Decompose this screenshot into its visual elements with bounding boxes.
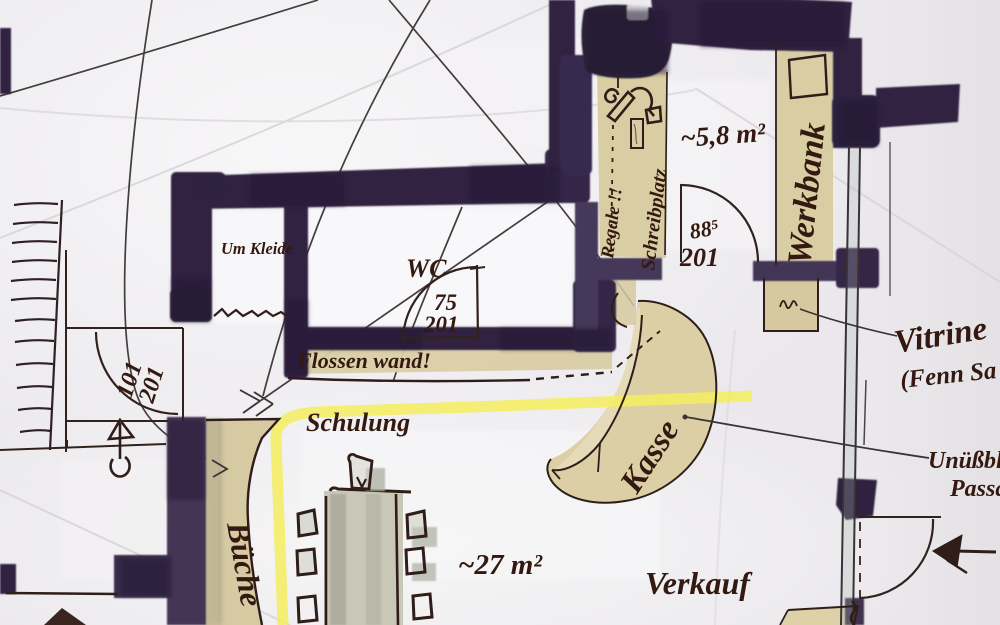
svg-text:Schulung: Schulung [306, 408, 410, 437]
svg-text:Passa: Passa [949, 476, 1000, 502]
svg-text:88⁵: 88⁵ [688, 214, 722, 244]
svg-text:Flossen wand!: Flossen wand! [296, 348, 431, 373]
svg-text:Um Kleide: Um Kleide [221, 239, 293, 258]
svg-text:~5,8 m²: ~5,8 m² [679, 117, 767, 153]
svg-text:WC: WC [406, 254, 447, 283]
svg-text:201: 201 [679, 243, 719, 272]
svg-text:Unüßbl: Unüßbl [928, 448, 1000, 474]
svg-text:201: 201 [423, 312, 459, 337]
svg-text:~27 m²: ~27 m² [458, 549, 543, 581]
svg-text:Verkauf: Verkauf [645, 565, 753, 601]
